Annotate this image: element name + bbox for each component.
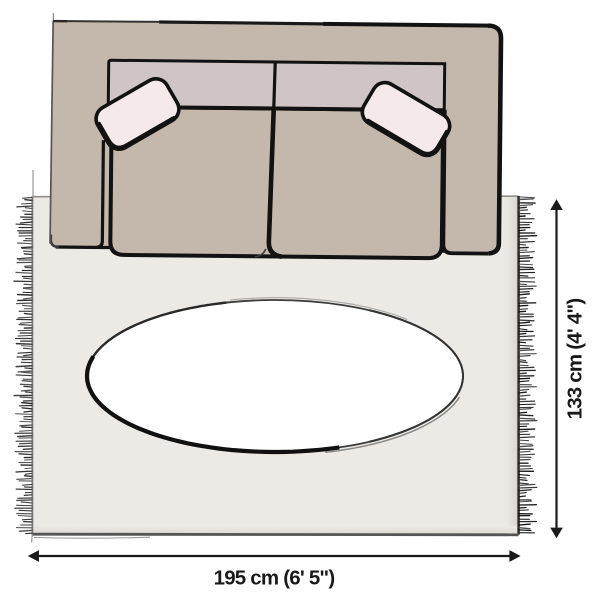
- svg-text:195 cm (6' 5"): 195 cm (6' 5"): [214, 567, 335, 590]
- svg-text:133 cm (4' 4"): 133 cm (4' 4"): [564, 299, 587, 420]
